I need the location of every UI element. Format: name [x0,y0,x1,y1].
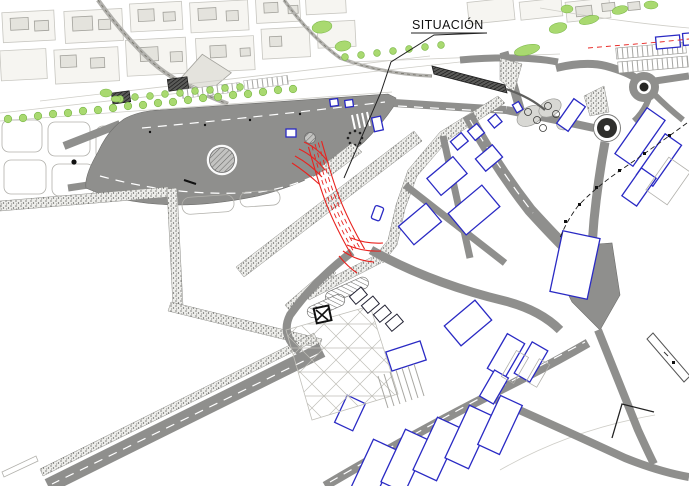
crane-symbol [314,305,332,323]
yard-marker-dot [71,159,76,164]
blue-building [488,114,502,128]
situation-plan-drawing: SITUACIÓN [0,0,689,486]
blue-building [427,157,467,196]
boulevard-roundabout-island [210,148,235,173]
median-roundabout-island [305,133,316,144]
blue-building [386,341,426,371]
blue-building [286,129,296,137]
blue-building [444,300,491,346]
tree-row-canal-bank [342,42,445,61]
pier-building [647,333,689,382]
quay-strip-outline [2,456,38,477]
blue-building [371,205,384,221]
northeast-parking-stalls [616,32,689,73]
blue-building [345,99,354,107]
blue-building [656,35,681,49]
site-plan-map: SITUACIÓN [0,0,689,486]
blue-building [372,116,384,132]
blue-building [330,98,339,106]
interchange-roundabout-island [640,83,649,92]
quay-road [48,350,322,486]
situacion-label: SITUACIÓN [412,17,484,32]
